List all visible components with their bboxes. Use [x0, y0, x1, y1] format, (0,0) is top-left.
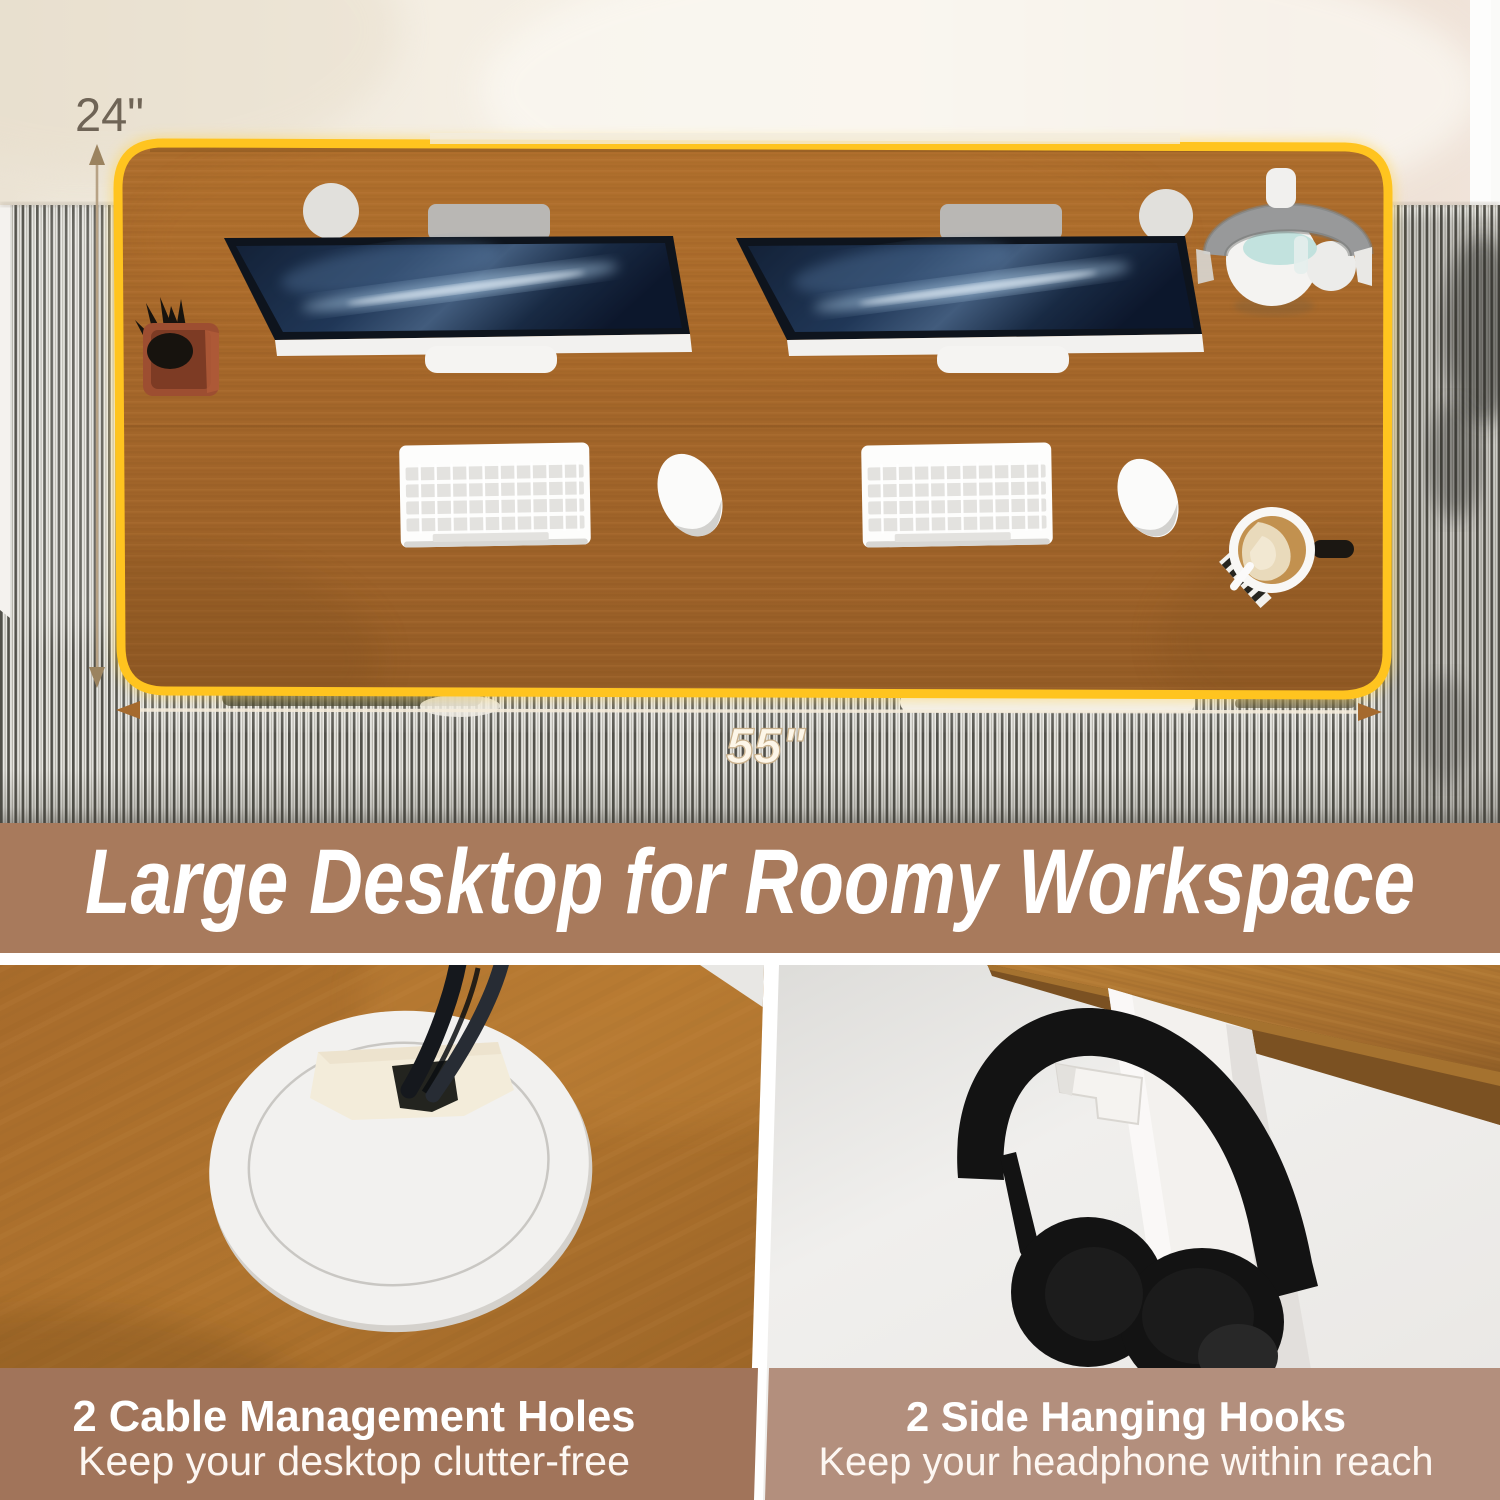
svg-text:24": 24"	[75, 88, 144, 141]
svg-text:Keep your headphone within rea: Keep your headphone within reach	[819, 1440, 1434, 1484]
svg-text:55": 55"	[726, 718, 807, 774]
svg-text:Large Desktop for Roomy Worksp: Large Desktop for Roomy Workspace	[85, 831, 1415, 933]
svg-text:Keep your desktop clutter-free: Keep your desktop clutter-free	[78, 1438, 630, 1484]
svg-text:2 Cable Management Holes: 2 Cable Management Holes	[73, 1392, 636, 1441]
svg-text:2 Side Hanging Hooks: 2 Side Hanging Hooks	[906, 1393, 1346, 1440]
